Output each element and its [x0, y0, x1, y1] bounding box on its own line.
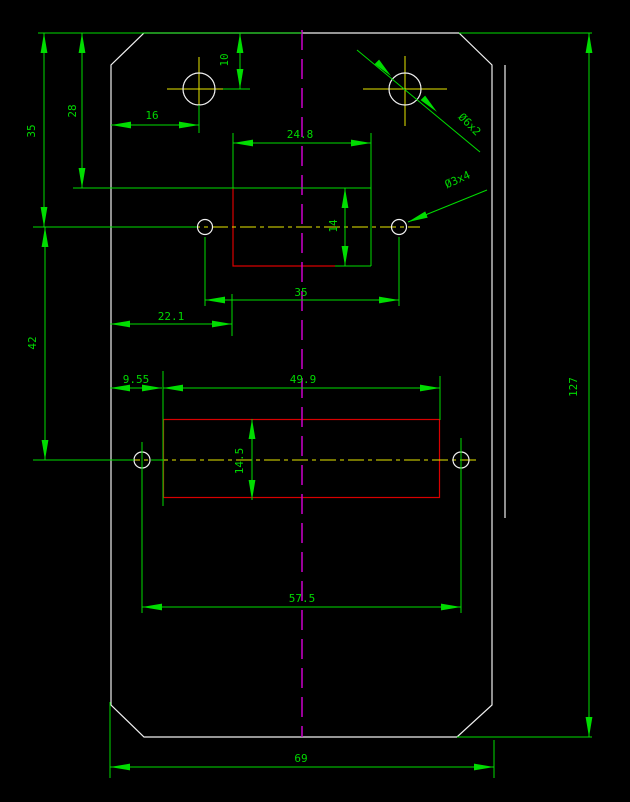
- dim-text: 14.5: [233, 448, 246, 475]
- dim-pocket-width[interactable]: 49.9: [163, 373, 440, 388]
- dim-text: 35: [25, 124, 38, 137]
- dim-left-edge-to-top-hole[interactable]: 16: [111, 109, 199, 125]
- leader-line: [357, 50, 480, 152]
- dim-text: 9.55: [123, 373, 150, 386]
- dim-lower-holes-spacing[interactable]: 57.5: [142, 592, 461, 607]
- dim-text: 14: [327, 219, 340, 233]
- hole-centerlines: [124, 56, 479, 460]
- dim-text: 10: [218, 53, 231, 66]
- dim-text: 69: [294, 752, 307, 765]
- dim-mid-holes-to-lower-holes[interactable]: 42: [26, 227, 45, 460]
- leader-top-holes-callout[interactable]: Ø6x2: [357, 50, 483, 152]
- callout-text: Ø3x4: [443, 168, 473, 191]
- dim-text: 16: [145, 109, 158, 122]
- dim-part-width[interactable]: 69: [110, 752, 494, 767]
- dim-text: 49.9: [290, 373, 317, 386]
- callout-text: Ø6x2: [456, 111, 484, 139]
- dim-text: 35: [294, 286, 307, 299]
- pocket-highlight[interactable]: [164, 420, 440, 498]
- dim-text: 22.1: [158, 310, 185, 323]
- dim-text: 28: [66, 104, 79, 117]
- dim-top-edge-to-mid-holes[interactable]: 35: [25, 33, 44, 227]
- dim-left-edge-to-pocket[interactable]: 9.55: [110, 373, 162, 388]
- leader-line: [408, 190, 487, 222]
- extension-lines: [33, 33, 592, 778]
- dim-text: 57.5: [289, 592, 316, 605]
- dim-text: 42: [26, 336, 39, 349]
- cad-canvas[interactable]: 10 16 28 35 42 24.8 14 35 22.1 9.55 49.9: [0, 0, 630, 802]
- dim-left-edge-to-slot[interactable]: 22.1: [110, 310, 232, 324]
- pocket-edges: [164, 420, 440, 498]
- dim-part-height[interactable]: 127: [567, 33, 589, 737]
- dim-mid-holes-spacing[interactable]: 35: [205, 286, 399, 300]
- leader-mid-holes-callout[interactable]: Ø3x4: [408, 168, 487, 222]
- dim-top-edge-to-slot-top[interactable]: 28: [66, 33, 82, 188]
- dim-slot-width[interactable]: 24.8: [233, 128, 371, 143]
- cad-drawing-viewport: 10 16 28 35 42 24.8 14 35 22.1 9.55 49.9: [0, 0, 630, 802]
- dim-slot-height[interactable]: 14: [327, 188, 345, 266]
- dim-text: 24.8: [287, 128, 314, 141]
- dim-text: 127: [567, 377, 580, 397]
- leader-arrow: [375, 60, 391, 76]
- dim-top-edge-to-top-holes[interactable]: 10: [218, 33, 240, 89]
